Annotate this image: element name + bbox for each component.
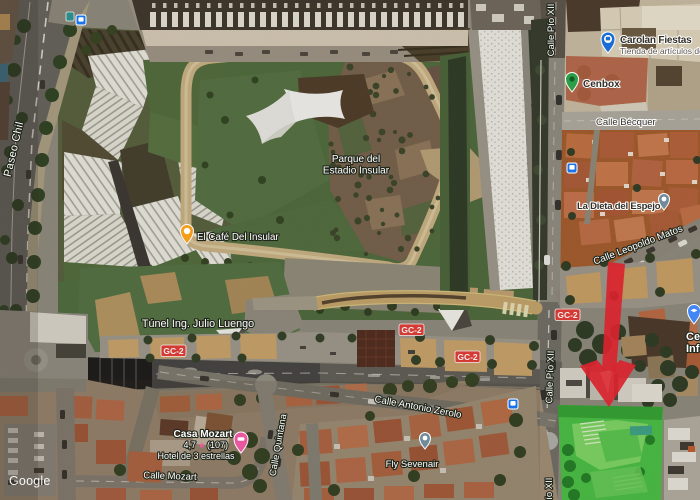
svg-text:Casa Mozart: Casa Mozart [174,429,234,440]
svg-text:Fly Sevenair: Fly Sevenair [386,459,439,470]
svg-text:El Café Del Insular: El Café Del Insular [197,232,279,243]
svg-text:★: ★ [198,440,206,450]
svg-text:(107): (107) [207,440,228,450]
svg-text:Infa: Infa [686,343,700,355]
svg-text:Parque del: Parque del [332,154,380,165]
svg-text:Google: Google [9,474,51,488]
svg-text:Calle Pío XII: Calle Pío XII [544,350,557,403]
svg-text:Túnel Ing. Julio Luengo: Túnel Ing. Julio Luengo [142,318,254,330]
svg-text:Calle Mozart: Calle Mozart [143,470,197,483]
svg-text:Calle Pío XII: Calle Pío XII [544,478,555,500]
svg-text:Calle Pío XII: Calle Pío XII [546,4,557,57]
svg-text:La Dieta del Espejo: La Dieta del Espejo [577,201,661,212]
svg-text:Hotel de 3 estrellas: Hotel de 3 estrellas [157,451,235,461]
svg-text:Cen: Cen [686,331,700,343]
svg-text:Cenbox: Cenbox [583,79,620,90]
svg-text:Carolan Fiestas: Carolan Fiestas [620,35,692,46]
svg-text:Calle Bécquer: Calle Bécquer [596,117,656,128]
svg-text:Tienda de artículos de fie: Tienda de artículos de fie [620,46,700,56]
svg-text:Estadio Insular: Estadio Insular [323,166,390,177]
svg-text:4,7: 4,7 [183,440,196,450]
